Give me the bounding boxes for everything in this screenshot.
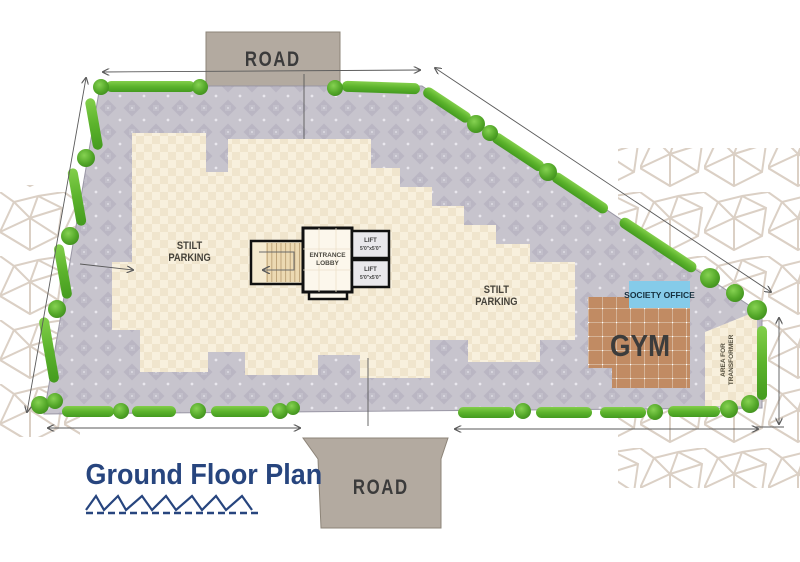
tree: [48, 300, 66, 318]
hedge: [600, 407, 646, 418]
tree: [61, 227, 79, 245]
lift-bottom-name: LIFT: [364, 267, 377, 273]
road-bottom-label: ROAD: [353, 476, 409, 499]
tree: [726, 284, 744, 302]
stair-treads: [266, 243, 305, 282]
hedge: [211, 406, 269, 417]
tree: [467, 115, 485, 133]
stilt-left-line2: PARKING: [168, 252, 210, 264]
hedge: [132, 406, 176, 417]
hedge: [62, 406, 114, 417]
tree: [700, 268, 720, 288]
hedge: [458, 407, 514, 418]
society-office: SOCIETY OFFICE: [624, 281, 695, 308]
lobby-label-line1: ENTRANCE: [309, 252, 346, 259]
tree: [482, 125, 498, 141]
hedge: [668, 406, 720, 417]
lift-bottom: [352, 260, 389, 287]
title-ornament-zigzag: [86, 496, 252, 510]
tree: [113, 403, 129, 419]
title-block: Ground Floor Plan: [86, 458, 323, 513]
road-bottom: ROAD: [303, 438, 448, 528]
tree: [190, 403, 206, 419]
tree: [77, 149, 95, 167]
lift-top-size: 5'0"x5'0": [360, 246, 382, 252]
stilt-right-line2: PARKING: [475, 296, 517, 308]
tree: [539, 163, 557, 181]
lobby-label-line2: LOBBY: [316, 260, 339, 267]
road-top-label: ROAD: [245, 48, 301, 71]
hedge: [536, 407, 592, 418]
lift-top: [352, 231, 389, 258]
lift-bottom-size: 5'0"x5'0": [360, 275, 382, 281]
tree: [286, 401, 300, 415]
tree: [47, 393, 63, 409]
tree: [741, 395, 759, 413]
hedge: [106, 81, 195, 92]
tree: [515, 403, 531, 419]
hedge: [757, 326, 767, 400]
tree: [93, 79, 109, 95]
ground-floor-plan-drawing: ROAD ROAD AREA FOR TRANSFORMER GYM SOCIE…: [0, 0, 800, 562]
tree: [720, 400, 738, 418]
tree: [272, 403, 288, 419]
tree: [327, 80, 343, 96]
stilt-right-line1: STILT: [484, 284, 510, 296]
tree: [647, 404, 663, 420]
tree: [192, 79, 208, 95]
gym-label: GYM: [610, 329, 670, 363]
transformer-label-line1: AREA FOR: [720, 343, 727, 377]
lift-top-name: LIFT: [364, 238, 377, 244]
road-top: ROAD: [206, 32, 340, 86]
stilt-left-line1: STILT: [177, 240, 203, 252]
page-title: Ground Floor Plan: [86, 458, 323, 490]
tree: [31, 396, 49, 414]
transformer-label-line2: TRANSFORMER: [728, 334, 735, 385]
tree: [747, 300, 767, 320]
society-office-label: SOCIETY OFFICE: [624, 290, 695, 300]
floor-plan-page: ROAD ROAD AREA FOR TRANSFORMER GYM SOCIE…: [0, 0, 800, 562]
